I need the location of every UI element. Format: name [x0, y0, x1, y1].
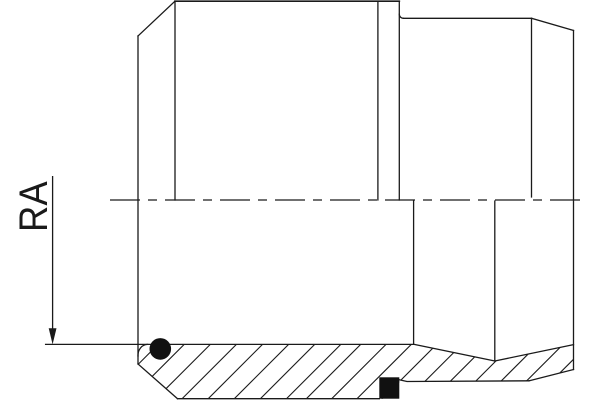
svg-text:RA: RA	[13, 181, 57, 232]
